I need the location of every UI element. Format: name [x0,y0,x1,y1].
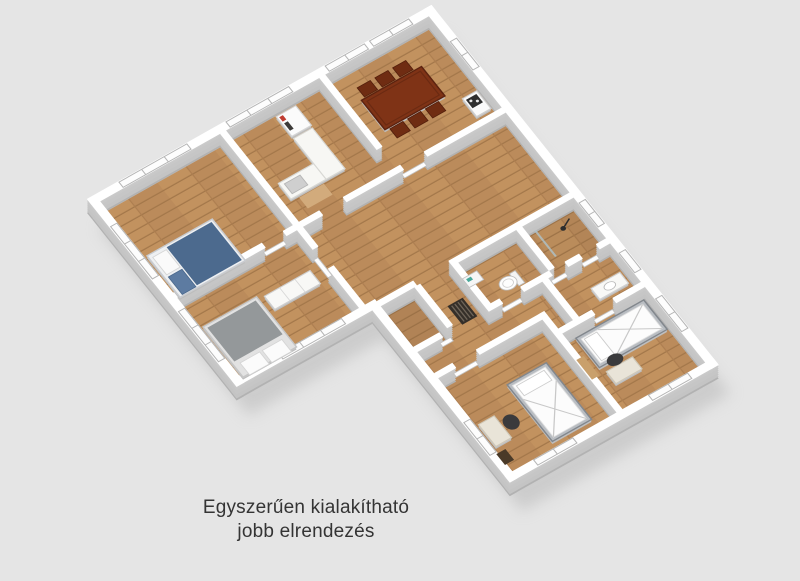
floor-plan-3d-render [0,0,800,581]
caption-line-1: Egyszerűen kialakítható [130,496,482,520]
floor-plan-stage: Egyszerűen kialakítható jobb elrendezés [0,0,800,581]
caption: Egyszerűen kialakítható jobb elrendezés [130,496,482,544]
caption-line-2: jobb elrendezés [130,520,482,544]
